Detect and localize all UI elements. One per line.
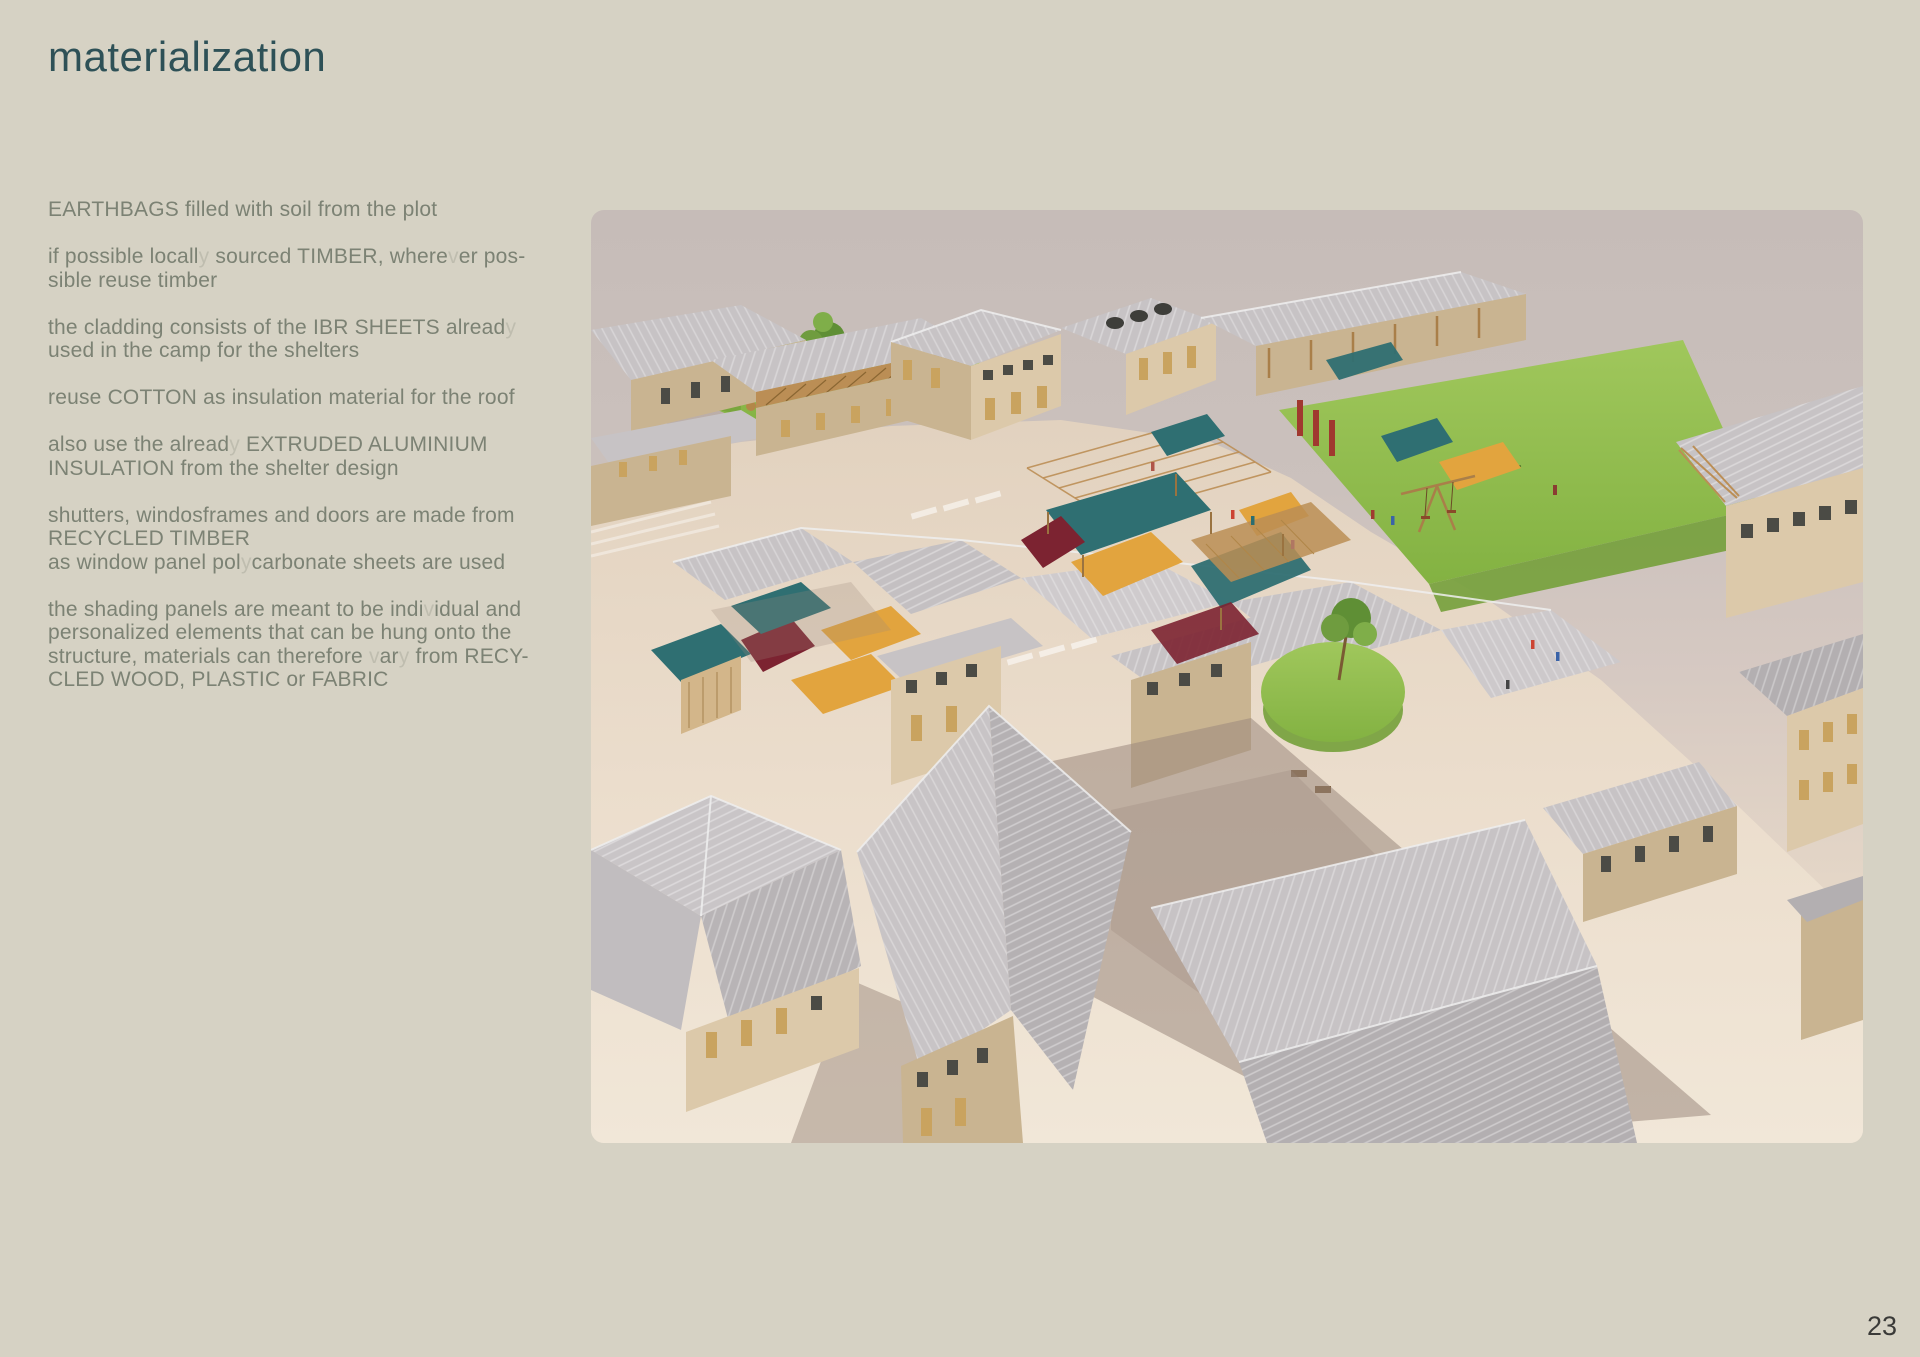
material-note-line: personalized elements that can be hung o… bbox=[48, 621, 573, 645]
material-note: if possible locally sourced TIMBER, wher… bbox=[48, 245, 573, 292]
material-note-line: the cladding consists of the IBR SHEETS … bbox=[48, 316, 573, 340]
material-note-line: CLED WOOD, PLASTIC or FABRIC bbox=[48, 668, 573, 692]
site-render-svg bbox=[591, 210, 1863, 1143]
material-note-line: RECYCLED TIMBER bbox=[48, 527, 573, 551]
material-note-line: structure, materials can therefore vary … bbox=[48, 645, 573, 669]
material-note: the cladding consists of the IBR SHEETS … bbox=[48, 316, 573, 363]
material-note: shutters, windosframes and doors are mad… bbox=[48, 504, 573, 575]
material-note: the shading panels are meant to be indiv… bbox=[48, 598, 573, 692]
material-note: reuse COTTON as insulation material for … bbox=[48, 386, 573, 410]
material-note-line: reuse COTTON as insulation material for … bbox=[48, 386, 573, 410]
material-note-line: also use the already EXTRUDED ALUMINIUM bbox=[48, 433, 573, 457]
material-note-line: if possible locally sourced TIMBER, wher… bbox=[48, 245, 573, 269]
material-note: also use the already EXTRUDED ALUMINIUMI… bbox=[48, 433, 573, 480]
material-note: EARTHBAGS filled with soil from the plot bbox=[48, 198, 573, 222]
material-note-line: sible reuse timber bbox=[48, 269, 573, 293]
material-note-line: shutters, windosframes and doors are mad… bbox=[48, 504, 573, 528]
material-note-line: as window panel polycarbonate sheets are… bbox=[48, 551, 573, 575]
material-note-line: EARTHBAGS filled with soil from the plot bbox=[48, 198, 573, 222]
site-render-image bbox=[591, 210, 1863, 1143]
page-number: 23 bbox=[1867, 1311, 1897, 1342]
material-note-line: the shading panels are meant to be indiv… bbox=[48, 598, 573, 622]
materials-notes: EARTHBAGS filled with soil from the plot… bbox=[48, 198, 573, 715]
page-title: materialization bbox=[48, 33, 326, 81]
material-note-line: INSULATION from the shelter design bbox=[48, 457, 573, 481]
material-note-line: used in the camp for the shelters bbox=[48, 339, 573, 363]
